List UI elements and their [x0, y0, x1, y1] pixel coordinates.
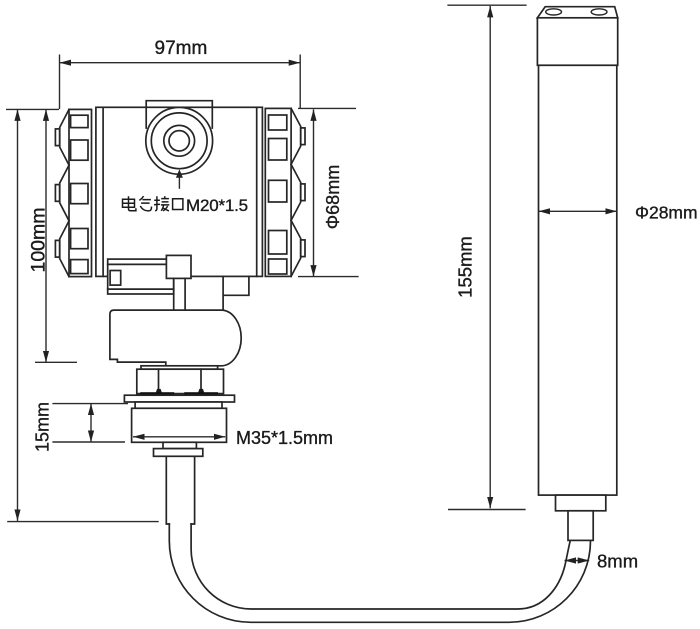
svg-text:15mm: 15mm [33, 402, 53, 452]
svg-text:97mm: 97mm [155, 38, 208, 59]
svg-text:8mm: 8mm [597, 551, 638, 572]
svg-text:M20*1.5: M20*1.5 [186, 196, 248, 215]
svg-text:155mm: 155mm [455, 236, 476, 298]
svg-text:100mm: 100mm [28, 207, 50, 272]
svg-text:Φ68mm: Φ68mm [323, 165, 343, 229]
svg-text:Φ28mm: Φ28mm [635, 203, 698, 223]
svg-text:M35*1.5mm: M35*1.5mm [236, 428, 333, 448]
